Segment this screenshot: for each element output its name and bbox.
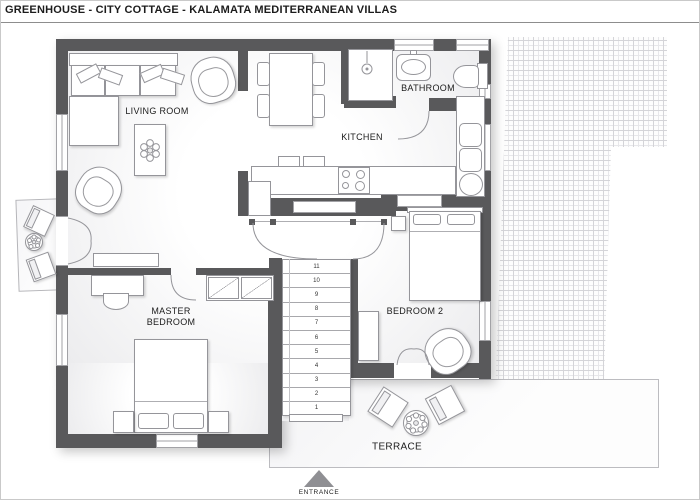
- burner-4: [355, 181, 365, 191]
- window-living-west: [56, 114, 68, 171]
- terrace-table: [403, 410, 429, 436]
- door-post-4: [381, 219, 387, 225]
- wardrobe-panel-2: [241, 277, 272, 299]
- armchair-cushion: [428, 332, 469, 372]
- counter-appliance-2: [303, 156, 325, 167]
- bed2-pillow-1: [413, 214, 441, 225]
- stair-step: 10: [283, 274, 350, 288]
- page-title: GREENHOUSE - CITY COTTAGE - KALAMATA MED…: [5, 4, 397, 16]
- bed2-pillow-2: [447, 214, 475, 225]
- washing-machine: [459, 173, 483, 196]
- nightstand-bedroom2: [391, 216, 406, 231]
- wardrobe-panel-1: [208, 277, 239, 299]
- stair-step: 5: [283, 345, 350, 359]
- label-living-room: LIVING ROOM: [125, 106, 188, 116]
- stair-step: 11: [283, 260, 350, 274]
- washbasin-faucet: [410, 50, 417, 55]
- sink-1: [459, 123, 482, 147]
- master-bed-fold-line: [135, 401, 207, 402]
- armchair-cushion: [77, 172, 118, 213]
- label-entrance: ENTRANCE: [299, 489, 340, 496]
- armchair-cushion: [195, 64, 232, 100]
- stair-step: 9: [283, 288, 350, 302]
- coffee-table: [134, 124, 166, 176]
- desk-chair: [103, 293, 129, 310]
- kitchen-south-niche: [293, 201, 356, 213]
- wall-shower-west: [341, 44, 348, 104]
- burner-2: [356, 170, 365, 179]
- stair-hall-cabinet: [358, 311, 379, 361]
- entrance-step: [289, 414, 343, 422]
- sink-2: [459, 148, 482, 172]
- hall-console: [93, 253, 159, 267]
- balcony-door-opening: [56, 216, 68, 266]
- door-post-3: [350, 219, 356, 225]
- balcony-table: [25, 233, 43, 251]
- stair-step: 6: [283, 331, 350, 345]
- dining-chair-2: [257, 94, 270, 118]
- stair-step: 3: [283, 374, 350, 388]
- title-divider: [1, 22, 700, 23]
- toilet-bowl: [453, 65, 479, 88]
- stair-step: 4: [283, 359, 350, 373]
- master-pillow-1: [138, 413, 169, 429]
- burner-3: [342, 182, 349, 189]
- bed2-fold-line: [410, 231, 480, 232]
- wall-master-north-left: [68, 268, 171, 275]
- stair-step: 7: [283, 317, 350, 331]
- door-post-1: [249, 219, 255, 225]
- staircase: 11 10 9 8 7 6 5 4 3 2 1: [282, 259, 351, 416]
- bedroom2-north-niche: [397, 195, 442, 207]
- nightstand-master-1: [113, 411, 134, 433]
- floor-plan: 11 10 9 8 7 6 5 4 3 2 1: [0, 0, 700, 500]
- washbasin-bowl: [401, 59, 426, 75]
- window-master-south: [156, 434, 198, 448]
- nightstand-master-2: [208, 411, 229, 433]
- stair-step: 2: [283, 388, 350, 402]
- label-kitchen: KITCHEN: [341, 132, 383, 142]
- label-bathroom: BATHROOM: [401, 83, 455, 93]
- counter-appliance-1: [278, 156, 300, 167]
- label-bedroom2: BEDROOM 2: [387, 306, 444, 316]
- wall-stair-top-stub: [269, 258, 282, 275]
- stair-stringer-line: [289, 259, 290, 414]
- door-post-2: [270, 219, 276, 225]
- wall-living-kitchen-bottom: [238, 171, 248, 216]
- burner-1: [342, 170, 350, 178]
- kitchen-counter-left: [248, 181, 271, 216]
- sofa-chaise: [69, 96, 119, 146]
- master-pillow-2: [173, 413, 204, 429]
- window-master-west: [56, 314, 68, 366]
- dining-chair-3: [312, 62, 325, 86]
- wall-bedroom2-south-left: [349, 363, 394, 378]
- entrance-arrow-icon: [304, 470, 334, 487]
- dining-table: [269, 53, 313, 126]
- window-bath-north-2: [456, 39, 489, 51]
- window-bedroom2-east: [479, 301, 491, 341]
- label-master-bedroom: MASTER BEDROOM: [145, 306, 197, 329]
- wall-living-kitchen-top: [238, 51, 248, 91]
- shower: [348, 49, 393, 101]
- stair-step: 8: [283, 303, 350, 317]
- dining-chair-1: [257, 62, 270, 86]
- label-terrace: TERRACE: [372, 442, 422, 453]
- dining-chair-4: [312, 94, 325, 118]
